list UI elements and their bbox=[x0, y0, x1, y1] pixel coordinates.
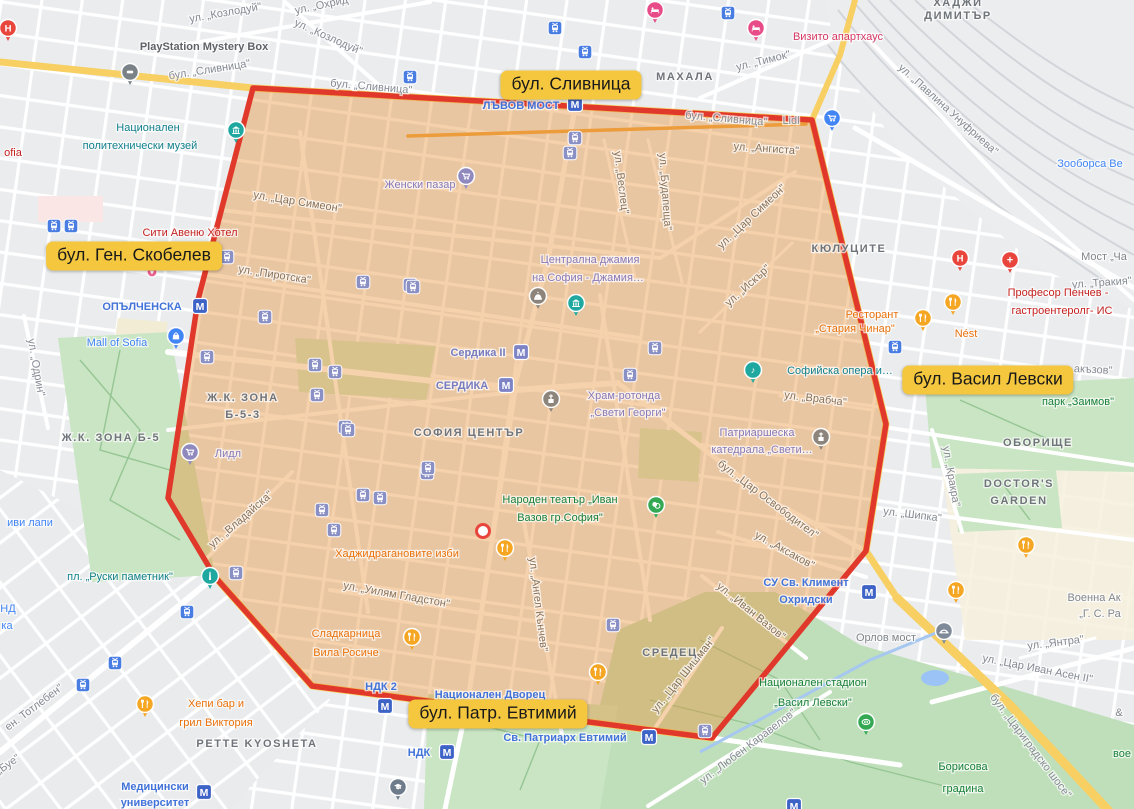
map-label: катедрала „Свети… bbox=[711, 444, 812, 456]
map-label: Централна джамия bbox=[541, 254, 640, 266]
map-label: Св. Патриарх Евтимий bbox=[503, 732, 626, 744]
svg-text:H: H bbox=[957, 253, 964, 264]
svg-text:М: М bbox=[443, 747, 452, 759]
tram-stop-icon[interactable] bbox=[315, 503, 329, 517]
map-label: иви лапи bbox=[7, 517, 53, 529]
map-label: Хепи бар и bbox=[188, 698, 244, 710]
tram-stop-icon[interactable] bbox=[356, 275, 370, 289]
tram-stop-icon[interactable] bbox=[623, 368, 637, 382]
map-label: Храм-ротонда bbox=[588, 390, 661, 402]
tram-stop-icon[interactable] bbox=[721, 6, 735, 20]
map-label: & bbox=[1115, 707, 1123, 719]
map-label: Mall of Sofia bbox=[87, 337, 148, 349]
map-label: Хаджидрагановите изби bbox=[335, 548, 459, 560]
map-label: ка bbox=[1, 620, 13, 632]
map-label: ОБОРИЩЕ bbox=[1003, 437, 1073, 449]
tram-stop-icon[interactable] bbox=[220, 250, 234, 264]
map-label: PlayStation Mystery Box bbox=[140, 41, 269, 53]
map-label: ХАДЖИ bbox=[933, 0, 982, 9]
metro-station-icon[interactable]: М bbox=[440, 745, 455, 760]
svg-text:М: М bbox=[517, 347, 526, 359]
svg-text:М: М bbox=[502, 380, 511, 392]
tram-stop-icon[interactable] bbox=[421, 461, 435, 475]
map-label: Софийска опера и… bbox=[787, 365, 893, 377]
tram-stop-icon[interactable] bbox=[548, 21, 562, 35]
tram-stop-icon[interactable] bbox=[76, 678, 90, 692]
map-label: политехнически музей bbox=[83, 140, 198, 152]
map-label: Nést bbox=[955, 328, 978, 340]
map-label: Вазов гр.София" bbox=[517, 512, 603, 524]
map-label: СУ Св. Климент bbox=[763, 577, 849, 589]
map-label: НДК bbox=[408, 747, 431, 759]
street-annotation-patr-evtimiy: бул. Патр. Евтимий bbox=[408, 700, 587, 729]
map-label: Патриаршеска bbox=[720, 427, 796, 439]
svg-text:М: М bbox=[571, 99, 580, 111]
map-label: Народен театър „Иван bbox=[502, 494, 617, 506]
map-label: „Г. С. Ра bbox=[1079, 608, 1121, 620]
map-label: Зооборса Ве bbox=[1057, 158, 1123, 170]
map-label: акъзов" bbox=[1074, 363, 1113, 377]
metro-station-icon[interactable]: М bbox=[193, 299, 208, 314]
map-label: Професор Пенчев - bbox=[1008, 287, 1109, 299]
tram-stop-icon[interactable] bbox=[578, 45, 592, 59]
map-label: Борисова bbox=[938, 761, 988, 773]
map-label: на София - Джамия… bbox=[532, 272, 644, 284]
svg-text:М: М bbox=[196, 301, 205, 313]
tram-stop-icon[interactable] bbox=[108, 656, 122, 670]
map-label: СЕРДИКА bbox=[436, 380, 488, 392]
map-label: Военна Ак bbox=[1067, 592, 1120, 604]
map-label: Национален bbox=[116, 122, 179, 134]
tram-stop-icon[interactable] bbox=[200, 350, 214, 364]
metro-station-icon[interactable]: М bbox=[787, 799, 802, 809]
metro-station-icon[interactable]: М bbox=[862, 585, 877, 600]
map-label: Лидл bbox=[215, 448, 241, 460]
map-label: парк „Заимов" bbox=[1042, 396, 1114, 408]
map-label: Национален стадион bbox=[759, 677, 867, 689]
map-label: ОПЪЛЧЕНСКА bbox=[102, 301, 181, 313]
tram-stop-icon[interactable] bbox=[406, 280, 420, 294]
map-label: СРЕДЕЦ bbox=[642, 647, 697, 659]
map-label: ДИМИТЪР bbox=[924, 10, 992, 22]
map-label: СОФИЯ ЦЕНТЪР bbox=[414, 427, 525, 439]
map-label: Женски пазар bbox=[385, 179, 456, 191]
tram-stop-icon[interactable] bbox=[47, 219, 61, 233]
map-label: Сердика II bbox=[450, 347, 505, 359]
tram-stop-icon[interactable] bbox=[328, 365, 342, 379]
map-canvas[interactable]: ул. „Козлодуй"ул. „Козлодуй"ул. „Охрид"б… bbox=[0, 0, 1134, 809]
tram-stop-icon[interactable] bbox=[258, 310, 272, 324]
tram-stop-icon[interactable] bbox=[327, 523, 341, 537]
svg-text:М: М bbox=[645, 732, 654, 744]
tram-stop-icon[interactable] bbox=[373, 491, 387, 505]
svg-text:М: М bbox=[865, 587, 874, 599]
map-label: гастроентеролг- ИС bbox=[1012, 305, 1113, 317]
svg-text:H: H bbox=[5, 23, 12, 34]
map-viewport[interactable]: ул. „Козлодуй"ул. „Козлодуй"ул. „Охрид"б… bbox=[0, 0, 1134, 809]
tram-stop-icon[interactable] bbox=[606, 618, 620, 632]
map-label: ЛЪВОВ МОСТ bbox=[483, 100, 560, 112]
map-label: Сити Авеню Хотел bbox=[142, 227, 237, 239]
metro-station-icon[interactable]: М bbox=[197, 785, 212, 800]
map-label: пл. „Руски паметник" bbox=[67, 571, 173, 583]
map-label: Визито апартхаус bbox=[793, 31, 884, 43]
map-label: университет bbox=[121, 797, 190, 809]
map-label: „Васил Левски" bbox=[774, 697, 852, 709]
map-label: Орлов мост bbox=[856, 632, 916, 644]
map-label: КЮЛУЦИТЕ bbox=[812, 243, 887, 255]
map-label: грил Виктория bbox=[179, 717, 252, 729]
map-label: ofia bbox=[4, 147, 23, 159]
map-label: Охридски bbox=[779, 594, 832, 606]
tram-stop-icon[interactable] bbox=[648, 341, 662, 355]
map-label: „Стария Чинар" bbox=[815, 323, 895, 335]
metro-station-icon[interactable]: М bbox=[378, 699, 393, 714]
tram-stop-icon[interactable] bbox=[698, 724, 712, 738]
map-label: градина bbox=[942, 783, 984, 795]
tram-stop-icon[interactable] bbox=[180, 605, 194, 619]
tram-stop-icon[interactable] bbox=[229, 566, 243, 580]
map-label: Ж.К. ЗОНА Б-5 bbox=[61, 432, 161, 444]
tram-stop-icon[interactable] bbox=[563, 146, 577, 160]
street-annotation-vasil-levski: бул. Васил Левски bbox=[902, 366, 1073, 395]
street-annotation-gen-skobelev: бул. Ген. Скобелев bbox=[46, 242, 222, 271]
metro-station-icon[interactable]: М bbox=[499, 378, 514, 393]
map-label: Медицински bbox=[121, 781, 189, 793]
map-label: Ресторант bbox=[846, 309, 899, 321]
map-label: Б-5-3 bbox=[225, 409, 260, 421]
tram-stop-icon[interactable] bbox=[403, 70, 417, 84]
map-label: вое bbox=[1113, 748, 1131, 760]
location-dot bbox=[477, 525, 490, 538]
map-label: DOCTOR'S bbox=[984, 478, 1054, 490]
svg-text:+: + bbox=[1007, 255, 1013, 267]
metro-station-icon[interactable]: М bbox=[642, 730, 657, 745]
svg-text:М: М bbox=[381, 701, 390, 713]
map-label: Вила Росиче bbox=[313, 647, 379, 659]
map-label: Мост „Ча bbox=[1081, 251, 1128, 263]
tram-stop-icon[interactable] bbox=[888, 340, 902, 354]
location-dot-marker bbox=[477, 525, 490, 538]
tram-stop-icon[interactable] bbox=[64, 219, 78, 233]
map-label: „Свети Георги" bbox=[591, 407, 666, 419]
tram-stop-icon[interactable] bbox=[356, 488, 370, 502]
tram-stop-icon[interactable] bbox=[341, 423, 355, 437]
metro-station-icon[interactable]: М bbox=[514, 345, 529, 360]
map-label: НДК 2 bbox=[365, 681, 397, 693]
svg-text:М: М bbox=[790, 801, 799, 809]
tram-stop-icon[interactable] bbox=[568, 131, 582, 145]
tram-stop-icon[interactable] bbox=[310, 388, 324, 402]
map-label: PETTE KYOSHETA bbox=[196, 738, 317, 750]
map-label: МАХАЛА bbox=[656, 71, 714, 83]
svg-text:М: М bbox=[200, 787, 209, 799]
map-label: Ж.К. ЗОНА bbox=[206, 392, 278, 404]
map-label: Сладкарница bbox=[312, 628, 382, 640]
svg-text:♪: ♪ bbox=[751, 365, 756, 375]
map-label: Lidl bbox=[782, 115, 799, 127]
svg-text:♥: ♥ bbox=[150, 270, 154, 277]
tram-stop-icon[interactable] bbox=[308, 358, 322, 372]
street-annotation-slivnitsa: бул. Сливница bbox=[500, 71, 641, 100]
map-label: НД bbox=[0, 603, 16, 615]
map-label: GARDEN bbox=[990, 495, 1047, 507]
